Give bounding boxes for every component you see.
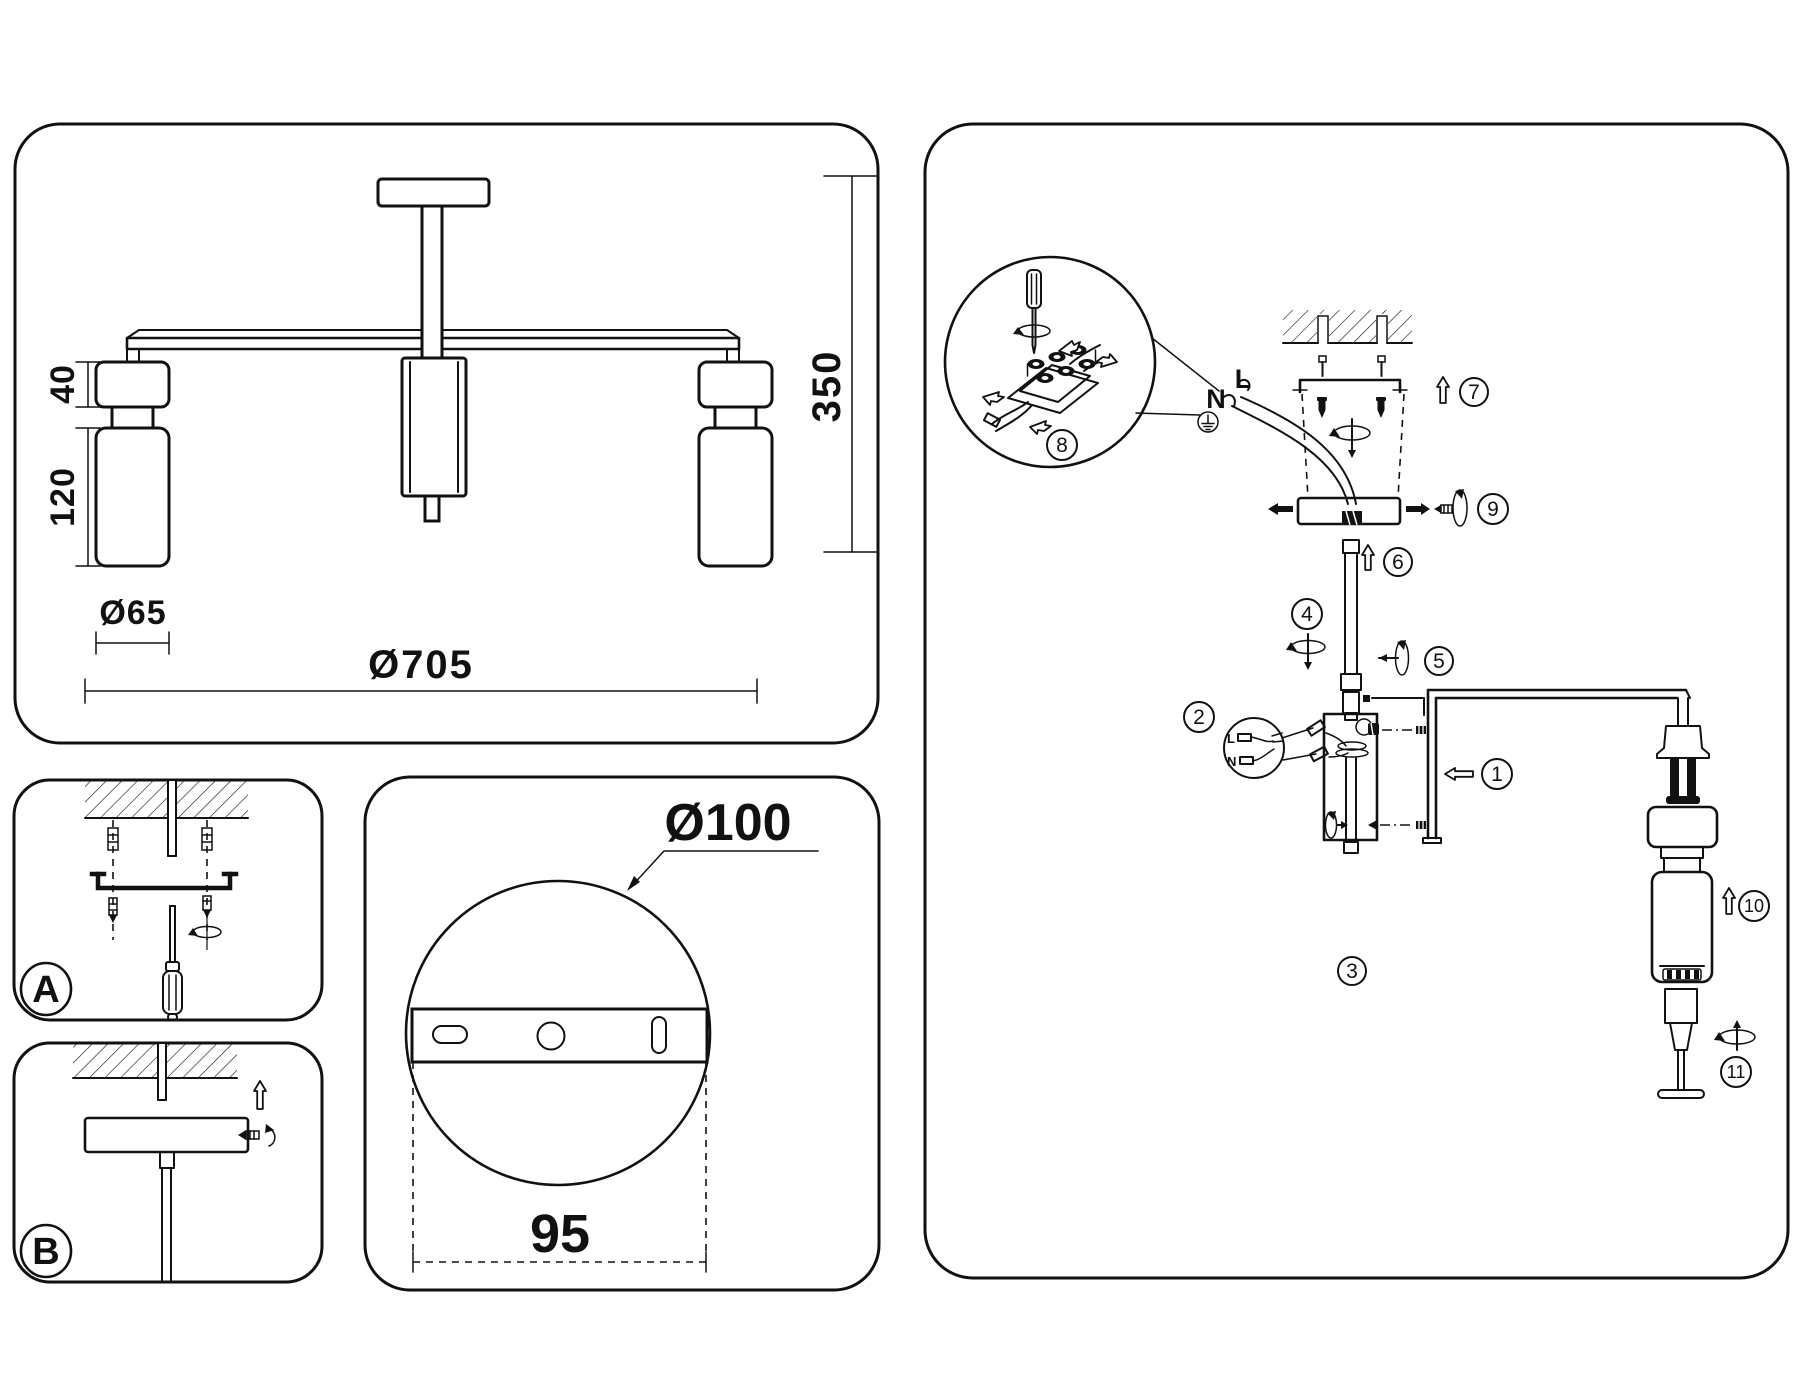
diagram-canvas: 40 120 Ø65 Ø705 350 [0,0,1800,1400]
svg-text:4: 4 [1301,603,1313,626]
ceiling-hatch [73,1044,237,1078]
lamp-left [96,362,169,566]
svg-text:8: 8 [1056,434,1068,457]
dim-350: 350 [805,350,849,423]
svg-text:11: 11 [1727,1062,1746,1082]
plate-bar [412,1009,707,1062]
dim-100: Ø100 [664,794,791,852]
svg-text:1: 1 [1491,763,1503,786]
svg-text:9: 9 [1487,498,1499,521]
balloon-live-label: L [1227,731,1235,746]
ceiling-hatch [85,781,248,818]
dim-120: 120 [44,467,82,527]
dim-40: 40 [44,364,82,404]
svg-text:5: 5 [1433,650,1445,673]
svg-text:2: 2 [1193,706,1205,729]
svg-text:7: 7 [1468,381,1480,404]
svg-text:10: 10 [1744,896,1764,916]
instruction-sheet: 40 120 Ø65 Ø705 350 [0,0,1800,1400]
svg-text:6: 6 [1392,551,1404,574]
dim-65: Ø65 [99,594,166,632]
svg-text:3: 3 [1346,960,1358,983]
central-hub [402,358,466,521]
key-square [1363,695,1370,702]
down-rod [422,206,442,358]
step-a-label: A [32,969,59,1011]
ceiling-canopy [378,179,489,206]
lamp-right [699,362,772,566]
step-b-label: B [32,1231,59,1273]
panel-assembly [925,124,1788,1278]
dim-705: Ø705 [368,643,474,687]
ceiling-hatch [1283,310,1412,343]
balloon-neutral-label: N [1227,754,1236,769]
dim-95: 95 [530,1204,590,1264]
